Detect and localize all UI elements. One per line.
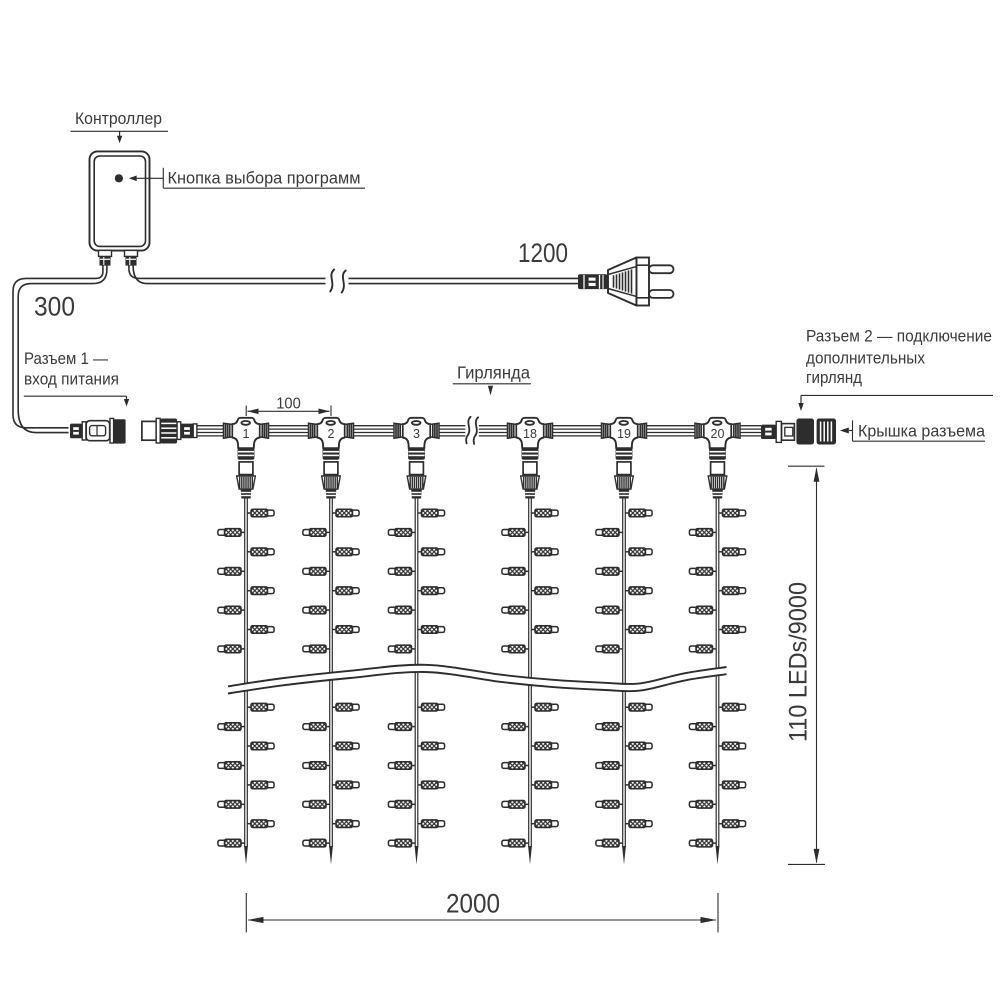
svg-text:Крышка разъема: Крышка разъема <box>858 422 986 441</box>
svg-text:110 LEDs/9000: 110 LEDs/9000 <box>785 582 813 742</box>
svg-text:100: 100 <box>276 396 301 413</box>
svg-text:1: 1 <box>243 427 250 441</box>
svg-text:Кнопка выбора программ: Кнопка выбора программ <box>168 169 361 188</box>
svg-text:Контроллер: Контроллер <box>75 109 162 128</box>
svg-text:гирлянд: гирлянд <box>806 368 862 387</box>
svg-text:Гирлянда: Гирлянда <box>457 363 530 383</box>
svg-text:1200: 1200 <box>518 238 568 268</box>
svg-text:Разъем 2 — подключение: Разъем 2 — подключение <box>806 327 992 346</box>
svg-text:вход питания: вход питания <box>24 370 119 389</box>
svg-text:300: 300 <box>34 292 75 322</box>
svg-text:2: 2 <box>328 427 335 441</box>
svg-text:20: 20 <box>711 427 725 441</box>
svg-text:18: 18 <box>523 427 537 441</box>
svg-text:3: 3 <box>413 427 420 441</box>
svg-text:Разъем 1 —: Разъем 1 — <box>24 349 108 368</box>
svg-text:19: 19 <box>617 427 631 441</box>
svg-text:дополнительных: дополнительных <box>806 349 925 368</box>
svg-text:2000: 2000 <box>446 889 500 919</box>
